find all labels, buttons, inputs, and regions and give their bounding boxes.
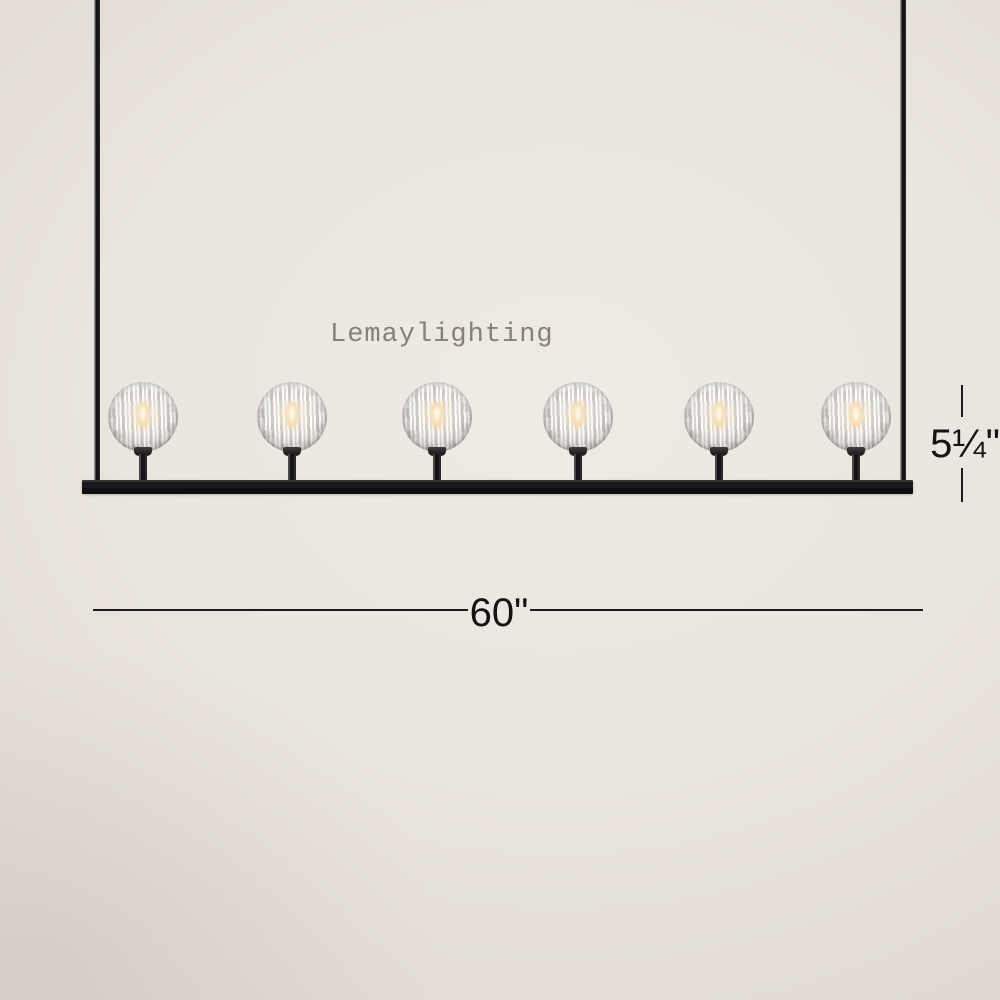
crystal-ball-shade: [543, 382, 613, 452]
crystal-light-5: [684, 382, 754, 480]
bulb-glow: [431, 402, 443, 428]
crystal-ball-shade: [108, 382, 178, 452]
fixture-bar: [82, 480, 913, 494]
crystal-ball-shade: [257, 382, 327, 452]
light-stem: [139, 454, 147, 480]
width-dimension-line-left: [93, 609, 468, 611]
bulb-glow: [286, 402, 298, 428]
bulb-glow: [713, 402, 725, 428]
suspension-rod-right: [900, 0, 906, 481]
crystal-light-1: [108, 382, 178, 480]
crystal-light-4: [543, 382, 613, 480]
light-stem: [288, 454, 296, 480]
width-dimension-line-right: [530, 609, 923, 611]
light-stem: [574, 454, 582, 480]
width-dimension-label: 60": [429, 593, 569, 633]
bulb-glow: [850, 402, 862, 428]
bulb-glow: [572, 402, 584, 428]
product-image: Lemaylighting 5¼" 60": [0, 0, 1000, 1000]
crystal-ball-shade: [684, 382, 754, 452]
brand-watermark: Lemaylighting: [330, 320, 554, 350]
suspension-rod-left: [94, 0, 100, 481]
height-dimension-tick-bottom: [961, 468, 963, 502]
light-stem: [715, 454, 723, 480]
light-stem: [852, 454, 860, 480]
light-stem: [433, 454, 441, 480]
height-dimension-tick-top: [961, 385, 963, 417]
crystal-light-2: [257, 382, 327, 480]
crystal-ball-shade: [821, 382, 891, 452]
height-dimension-label: 5¼": [922, 424, 1000, 464]
crystal-light-6: [821, 382, 891, 480]
crystal-light-3: [402, 382, 472, 480]
crystal-ball-shade: [402, 382, 472, 452]
bulb-glow: [137, 402, 149, 428]
